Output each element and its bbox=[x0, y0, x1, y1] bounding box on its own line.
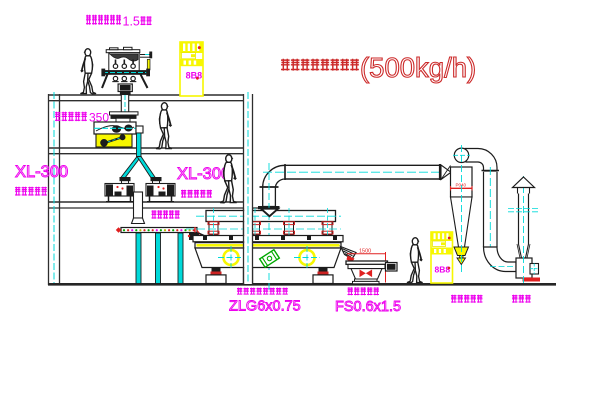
svg-text:XL-300: XL-300 bbox=[15, 163, 68, 181]
svg-text:1.5: 1.5 bbox=[123, 15, 140, 29]
svg-text:ZLG6x0.75: ZLG6x0.75 bbox=[229, 299, 301, 315]
svg-text:(500kg/h): (500kg/h) bbox=[360, 52, 476, 83]
svg-text:8B8: 8B8 bbox=[186, 71, 203, 81]
svg-text:P040: P040 bbox=[456, 183, 467, 188]
svg-text:8B8: 8B8 bbox=[435, 265, 451, 275]
svg-text:1500: 1500 bbox=[359, 249, 371, 255]
svg-text:FS0.6x1.5: FS0.6x1.5 bbox=[335, 299, 401, 315]
svg-text:XL-300: XL-300 bbox=[177, 165, 230, 183]
